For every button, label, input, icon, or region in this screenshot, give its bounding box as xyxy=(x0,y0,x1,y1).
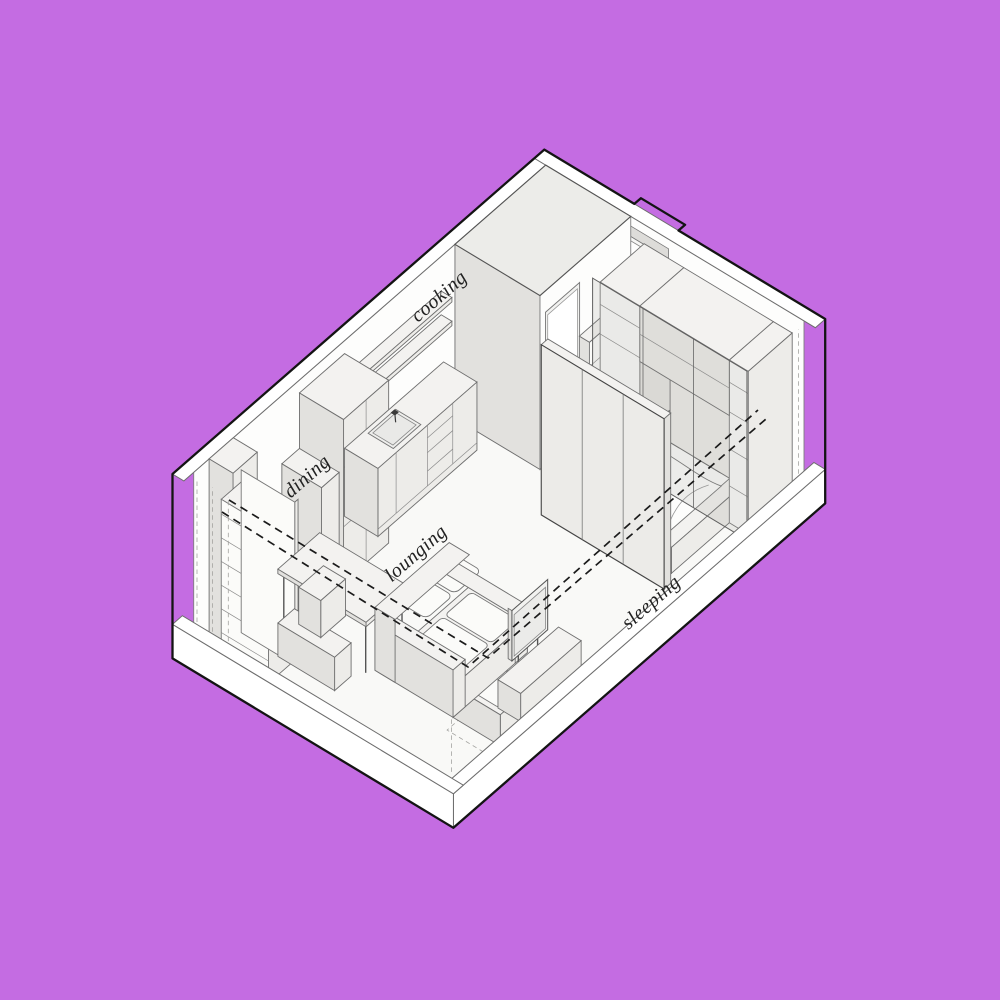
purple-canvas: cooking dining lounging sleeping xyxy=(0,0,1000,1000)
axonometric-floorplan-drawing: cooking dining lounging sleeping xyxy=(0,0,1000,1000)
